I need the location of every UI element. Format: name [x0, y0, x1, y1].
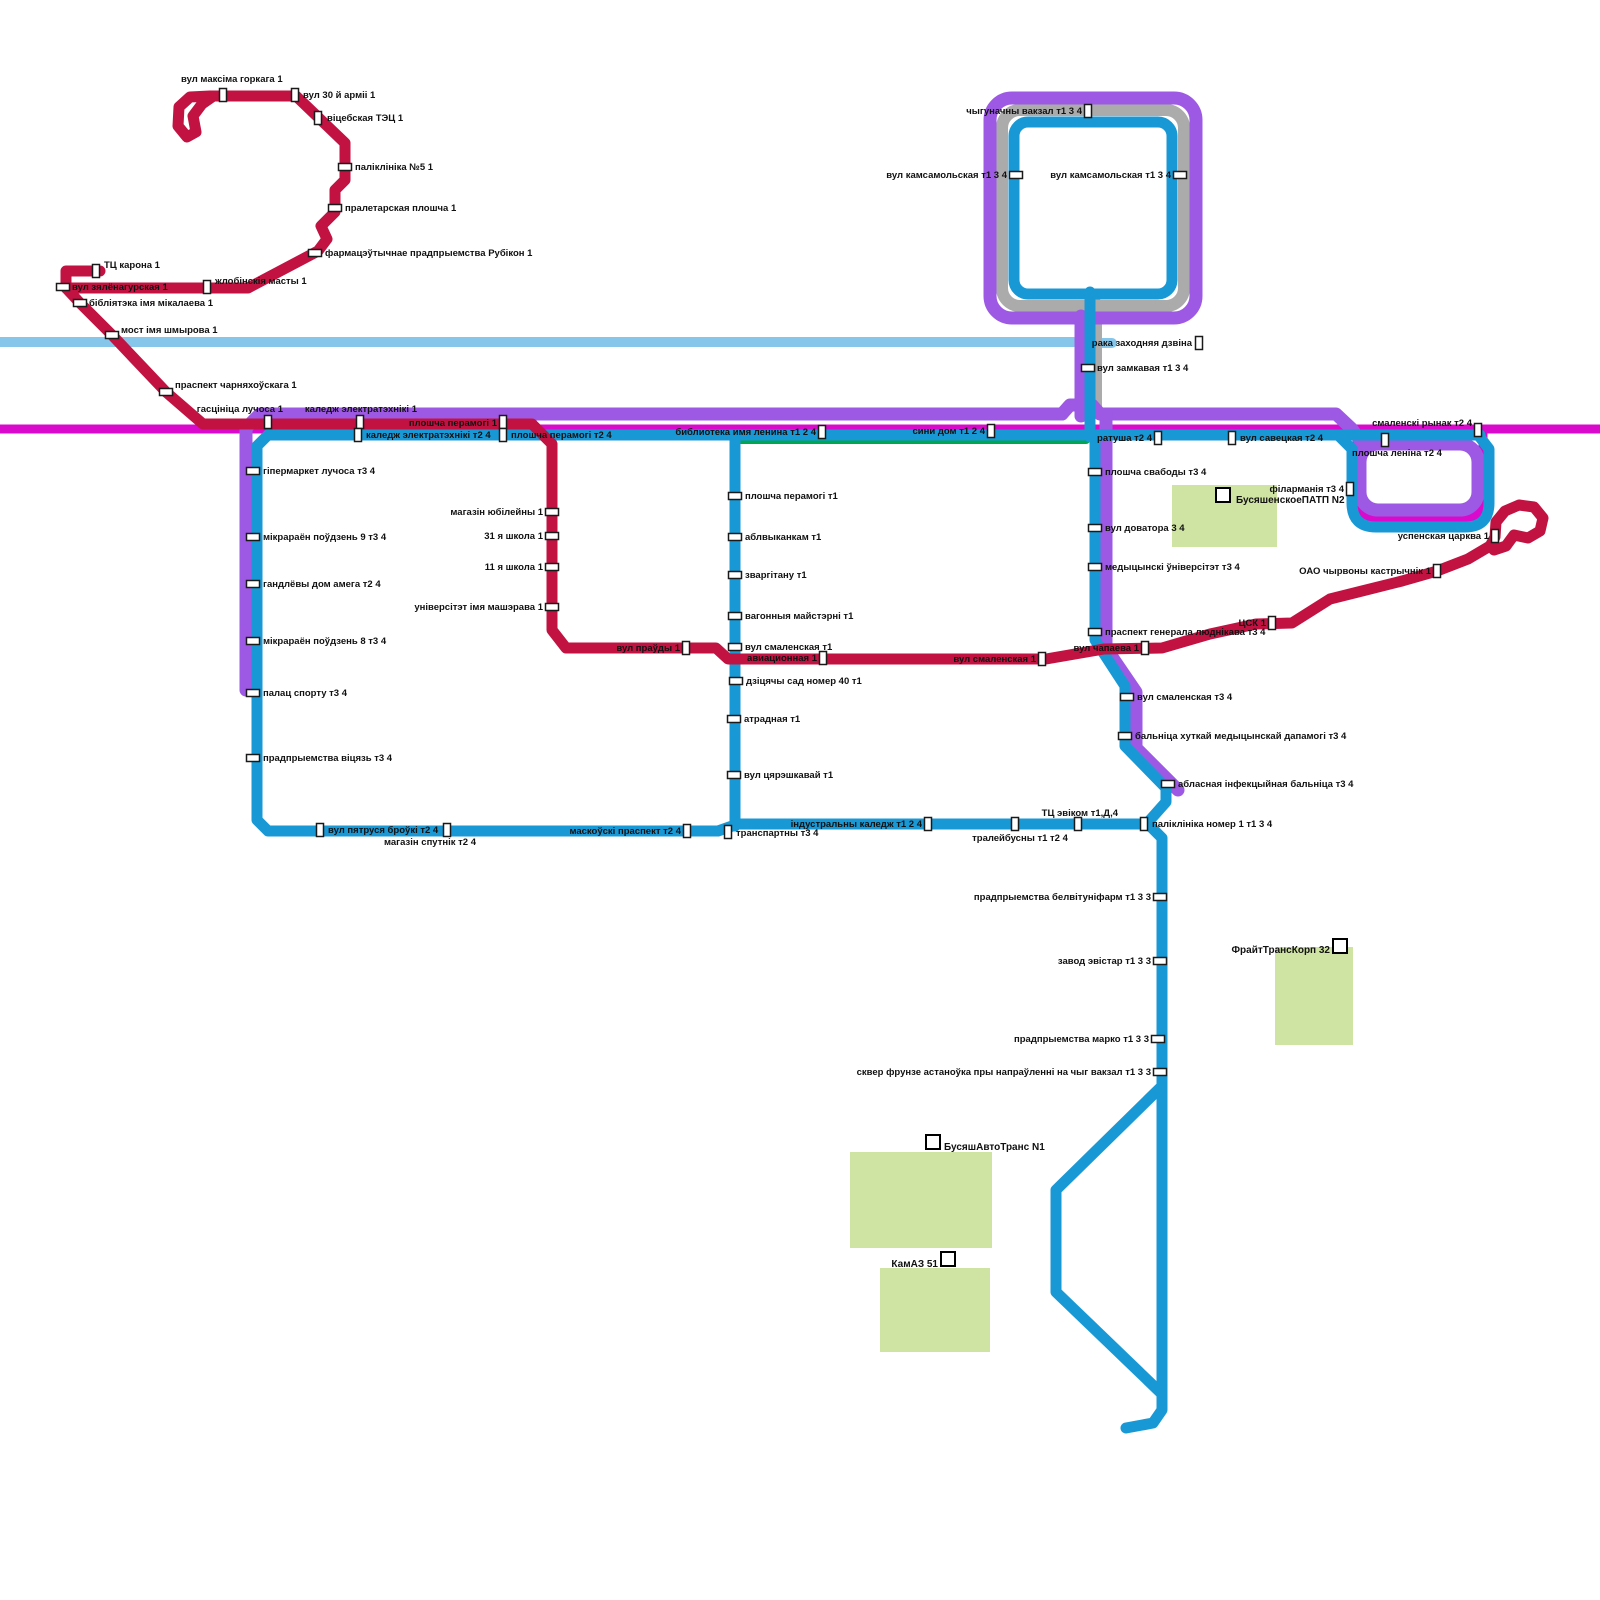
- stop-marker[interactable]: [1492, 530, 1499, 543]
- stop-label: вул савецкая т2 4: [1240, 433, 1324, 444]
- stop-marker[interactable]: [1382, 434, 1389, 447]
- stop-label: паліклініка №5 1: [355, 162, 434, 173]
- stop-marker[interactable]: [1089, 525, 1102, 532]
- stop-label: дзіцячы сад номер 40 т1: [746, 676, 863, 687]
- stop-label: прадпрыемства белвітуніфарм т1 3 3: [974, 892, 1151, 903]
- stop-label: бальніца хуткай медыцынскай дапамогі т3 …: [1135, 731, 1347, 742]
- stop-label: віцебская ТЭЦ 1: [327, 113, 404, 124]
- stop-marker[interactable]: [317, 824, 324, 837]
- stop-label: магазін юбілейны 1: [450, 507, 543, 518]
- stop-marker[interactable]: [1229, 432, 1236, 445]
- stop-marker[interactable]: [1154, 958, 1167, 965]
- stop-marker[interactable]: [1154, 894, 1167, 901]
- stop-label: філарманія т3 4: [1269, 484, 1344, 495]
- stop-marker[interactable]: [1089, 564, 1102, 571]
- stop-label: атрадная т1: [744, 714, 801, 725]
- route-blue-line-segment-5: [1056, 1086, 1162, 1394]
- stop-label: зваргітану т1: [745, 570, 807, 581]
- stop-label: гандлёвы дом амега т2 4: [263, 579, 381, 590]
- stop-marker[interactable]: [729, 572, 742, 579]
- stop-marker[interactable]: [265, 416, 272, 429]
- depot-fraight-marker[interactable]: [1333, 939, 1347, 953]
- stop-label: тралейбусны т1 т2 4: [972, 833, 1068, 844]
- stop-label: смаленскі рынак т2 4: [1372, 418, 1473, 429]
- stop-marker[interactable]: [925, 818, 932, 831]
- stop-marker[interactable]: [1196, 337, 1203, 350]
- stop-marker[interactable]: [247, 581, 260, 588]
- stop-marker[interactable]: [1075, 818, 1082, 831]
- stop-marker[interactable]: [1152, 1036, 1165, 1043]
- stop-marker[interactable]: [820, 652, 827, 665]
- depot-kamaz-label: КамАЗ 51: [891, 1259, 938, 1270]
- stop-marker[interactable]: [729, 534, 742, 541]
- stop-label: плошча перамогі т1: [745, 491, 839, 502]
- stop-marker[interactable]: [247, 690, 260, 697]
- stop-marker[interactable]: [500, 416, 507, 429]
- stop-marker[interactable]: [309, 250, 322, 257]
- stop-marker[interactable]: [725, 826, 732, 839]
- stop-label: прадпрыемства марко т1 3 3: [1014, 1034, 1149, 1045]
- stop-marker[interactable]: [1162, 781, 1175, 788]
- stop-label: чыгуначны вакзал т1 3 4: [966, 106, 1082, 117]
- stop-label: праспект чарняхоўскага 1: [175, 380, 297, 391]
- stop-marker[interactable]: [1154, 1069, 1167, 1076]
- stop-marker[interactable]: [1039, 653, 1046, 666]
- stop-marker[interactable]: [988, 425, 995, 438]
- stop-label: мост імя шмырова 1: [121, 325, 218, 336]
- stop-marker[interactable]: [684, 825, 691, 838]
- stop-marker[interactable]: [1475, 424, 1482, 437]
- stop-marker[interactable]: [1119, 733, 1132, 740]
- stop-marker[interactable]: [106, 332, 119, 339]
- depot-fraight-label: ФрайтТрансКорп 32: [1231, 945, 1330, 956]
- stop-label: вул чапаева 1: [1074, 643, 1140, 654]
- route-railway-gray-segment-0: [1002, 110, 1184, 306]
- stop-label: індустральны каледж т1 2 4: [791, 819, 923, 830]
- stop-label: прадпрыемства віцязь т3 4: [263, 753, 393, 764]
- stop-marker[interactable]: [728, 716, 741, 723]
- stop-marker[interactable]: [1155, 432, 1162, 445]
- stop-marker[interactable]: [57, 284, 70, 291]
- stop-marker[interactable]: [1347, 483, 1354, 496]
- depot-avtotrans-label: БусяшАвтоТранс N1: [944, 1142, 1045, 1153]
- stop-marker[interactable]: [500, 429, 507, 442]
- stop-label: плошча перамогі 1: [409, 418, 498, 429]
- stop-label: 11 я школа 1: [485, 562, 544, 573]
- stop-marker[interactable]: [220, 89, 227, 102]
- stop-marker[interactable]: [204, 281, 211, 294]
- stop-marker[interactable]: [339, 164, 352, 171]
- stop-marker[interactable]: [247, 534, 260, 541]
- stop-label: библиотека имя ленина т1 2 4: [675, 427, 816, 438]
- stop-label: вул цярэшкавай т1: [744, 770, 834, 781]
- stop-marker[interactable]: [1085, 105, 1092, 118]
- stop-label: вул максіма горкага 1: [181, 74, 283, 85]
- stop-label: аблвыканкам т1: [745, 532, 822, 543]
- stop-label: каледж электратэхнікі т2 4: [366, 430, 491, 441]
- stop-marker[interactable]: [315, 112, 322, 125]
- stop-marker[interactable]: [1269, 617, 1276, 630]
- stop-label: ратуша т2 4: [1097, 433, 1153, 444]
- stop-label: сквер фрунзе астаноўка пры напраўленні н…: [857, 1067, 1151, 1078]
- stop-label: абласная інфекцыйная бальніца т3 4: [1178, 779, 1354, 790]
- stop-marker[interactable]: [1121, 694, 1134, 701]
- stop-marker[interactable]: [546, 564, 559, 571]
- stop-marker[interactable]: [546, 604, 559, 611]
- stop-label: вул смаленская т3 4: [1137, 692, 1233, 703]
- stop-label: 31 я школа 1: [484, 531, 543, 542]
- stop-label: авиационная 1: [747, 653, 818, 664]
- stop-marker[interactable]: [1089, 469, 1102, 476]
- stop-marker[interactable]: [1082, 365, 1095, 372]
- stop-marker[interactable]: [247, 755, 260, 762]
- stop-label: мікрараён поўдзень 8 т3 4: [263, 636, 387, 647]
- stop-marker[interactable]: [247, 638, 260, 645]
- stop-marker[interactable]: [160, 389, 173, 396]
- stop-label: вул доватора 3 4: [1105, 523, 1185, 534]
- stop-label: успенская царква 1: [1398, 531, 1490, 542]
- stop-label: вул пятруся броўкі т2 4: [328, 825, 439, 836]
- stop-label: паліклініка номер 1 т1 3 4: [1152, 819, 1273, 830]
- stop-label: вул замкавая т1 3 4: [1097, 363, 1189, 374]
- transit-map-canvas: вул максіма горкага 1вул 30 й арміі 1віц…: [0, 0, 1600, 1600]
- stop-marker[interactable]: [546, 533, 559, 540]
- stop-label: плошча леніна т2 4: [1352, 448, 1443, 459]
- stop-marker[interactable]: [683, 642, 690, 655]
- stop-label: вул праўды 1: [616, 643, 680, 654]
- stop-marker[interactable]: [729, 613, 742, 620]
- stop-label: плошча свабоды т3 4: [1105, 467, 1207, 478]
- depot-kamaz-marker[interactable]: [941, 1252, 955, 1266]
- stop-label: плошча перамогі т2 4: [511, 430, 612, 441]
- stop-marker[interactable]: [74, 300, 87, 307]
- route-blue-line-segment-6: [1014, 122, 1172, 294]
- stop-label: мікрараён поўдзень 9 т3 4: [263, 532, 387, 543]
- depot-patp-label: БусяшенскоеПАТП N2: [1236, 495, 1345, 506]
- stop-marker[interactable]: [357, 416, 364, 429]
- stop-label: вул смаленская 1: [953, 654, 1036, 665]
- stop-label: праспект генерала люднікава т3 4: [1105, 627, 1266, 638]
- stop-marker[interactable]: [546, 509, 559, 516]
- stop-marker[interactable]: [444, 824, 451, 837]
- stop-marker[interactable]: [1174, 172, 1187, 179]
- stop-marker[interactable]: [292, 89, 299, 102]
- stop-label: ТЦ карона 1: [104, 260, 161, 271]
- stop-marker[interactable]: [1142, 642, 1149, 655]
- stop-label: вул смаленская т1: [745, 642, 833, 653]
- stop-label: ОАО чырвоны кастрычнік 1: [1299, 566, 1432, 577]
- stop-label: сини дом т1 2 4: [913, 426, 986, 437]
- stop-label: гіпермаркет лучоса т3 4: [263, 466, 376, 477]
- stop-label: вул зялёнагурская 1: [72, 282, 168, 293]
- stop-label: завод эвістар т1 3 3: [1058, 956, 1151, 967]
- stop-label: маскоўскі праспект т2 4: [569, 826, 681, 837]
- stop-marker[interactable]: [1141, 818, 1148, 831]
- stop-label: ТЦ эвіком т1,Д,4: [1042, 808, 1119, 819]
- depot-patp-marker[interactable]: [1216, 488, 1230, 502]
- stop-label: гасцініца лучоса 1: [197, 404, 284, 415]
- stop-label: каледж электратэхнікі 1: [305, 404, 418, 415]
- stop-label: універсітэт імя машэрава 1: [414, 602, 543, 613]
- stop-label: магазін спутнік т2 4: [384, 837, 477, 848]
- stop-label: палац спорту т3 4: [263, 688, 348, 699]
- stop-marker[interactable]: [729, 493, 742, 500]
- route-blue-line-segment-1: [257, 435, 1162, 1428]
- stop-label: фармацэўтычнае прадпрыемства Рубікон 1: [325, 248, 533, 259]
- stop-marker[interactable]: [1089, 629, 1102, 636]
- depot-kamaz-building: [880, 1268, 990, 1352]
- stop-label: медыцынскі ўніверсітэт т3 4: [1105, 562, 1240, 573]
- stop-label: жлобінскія масты 1: [214, 276, 307, 287]
- transit-map: вул максіма горкага 1вул 30 й арміі 1віц…: [0, 0, 1600, 1600]
- stop-label: рака заходняя дзвіна: [1092, 338, 1193, 349]
- stop-marker[interactable]: [247, 468, 260, 475]
- depot-fraight-building: [1275, 947, 1353, 1045]
- stop-marker[interactable]: [1012, 818, 1019, 831]
- stop-label: вул 30 й арміі 1: [303, 90, 376, 101]
- depot-avtotrans-marker[interactable]: [926, 1135, 940, 1149]
- stop-marker[interactable]: [730, 678, 743, 685]
- stop-label: вагонныя майстэрні т1: [745, 611, 854, 622]
- stop-marker[interactable]: [1010, 172, 1023, 179]
- stop-label: бібліятэка імя мікалаева 1: [89, 298, 214, 309]
- stop-marker[interactable]: [329, 205, 342, 212]
- depot-avtotrans-building: [850, 1152, 992, 1248]
- stop-marker[interactable]: [93, 265, 100, 278]
- stop-label: вул камсамольская т1 3 4: [1050, 170, 1171, 181]
- stop-marker[interactable]: [819, 426, 826, 439]
- stop-marker[interactable]: [355, 429, 362, 442]
- stop-marker[interactable]: [729, 644, 742, 651]
- stop-marker[interactable]: [1434, 565, 1441, 578]
- stop-marker[interactable]: [728, 772, 741, 779]
- stop-label: пралетарская плошча 1: [345, 203, 457, 214]
- stop-label: вул камсамольская т1 3 4: [886, 170, 1007, 181]
